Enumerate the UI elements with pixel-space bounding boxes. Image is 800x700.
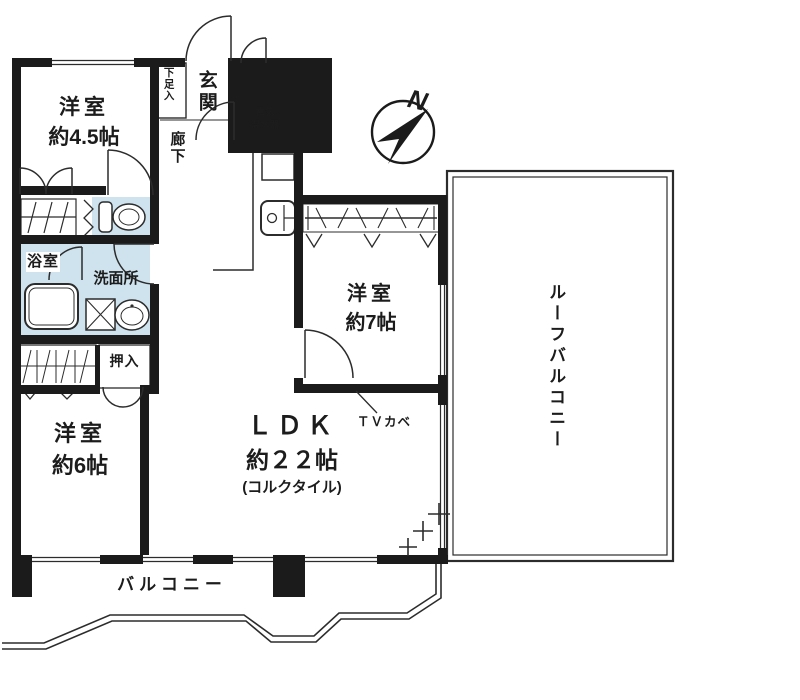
water-heater-label: 電気 温水器 [238,107,292,133]
balcony-label: バルコニー [98,574,246,596]
room-name: ＬＤＫ [247,410,337,443]
tv-wall-label: ＴＶカベ [357,414,411,430]
entrance-door-arc [186,16,231,61]
entrance-label: 玄関 [193,70,218,114]
hanger-rail-icon [303,204,439,232]
bedroom-small-label: 洋室 約4.5帖 [16,94,152,152]
folding-door-icon [84,200,93,236]
closet-bifold-icon [15,345,96,388]
hallway-label: 廊下 [167,131,187,165]
bedroom-large-label: 洋室 約7帖 [303,281,439,336]
washing-machine-icon [86,299,115,330]
wash-basin-icon [115,300,149,330]
closet-label: 押入 [101,352,148,370]
room-area: 約7帖 [345,310,396,336]
room-name: 洋室 [347,281,395,307]
louver-window-icon [21,199,76,236]
washroom-label: 洗面所 [84,269,148,289]
bedroom-medium-label: 洋室 約6帖 [14,420,146,480]
room-area: 約4.5帖 [48,124,119,151]
floor-plan: 洋室 約4.5帖 下足入 玄関 廊下 電気 温水器 浴室 洗面所 押入 洋室 約… [0,0,800,700]
bathroom-label: 浴室 [26,252,60,272]
room-name: 洋室 [54,420,106,449]
bathtub-icon [25,284,78,329]
oshiire-door-arcs [103,387,143,407]
shoe-cabinet-label: 下足入 [161,67,175,102]
bedroom-large-door-arc [305,330,353,378]
room-finish: (コルクタイル) [242,478,341,498]
toilet-icon [99,202,145,232]
room-name: 洋室 [59,94,109,121]
bedroom-small-door-arc [108,150,153,195]
kitchen-sink-icon [261,201,295,235]
room-area: 約２２帖 [246,446,338,476]
roof-balcony-label: ルーフバルコニー [544,283,566,451]
room-area: 約6帖 [52,452,108,481]
